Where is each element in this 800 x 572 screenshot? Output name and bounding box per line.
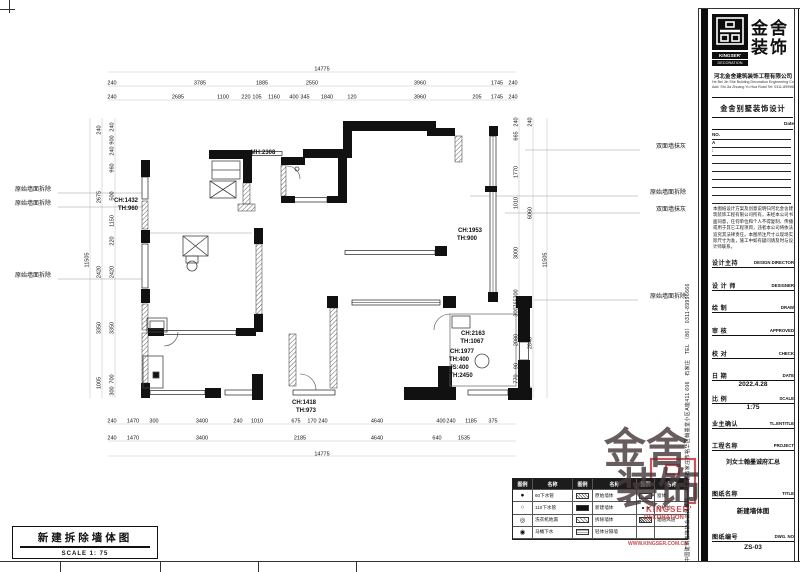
field-value: 1:75 [712,404,794,411]
dimension-text: 770 [514,374,520,383]
wall-plaster-label: 双面墙抹灰 [656,207,686,213]
dimension-text: 240 [514,117,520,126]
dimension-text: 675 [291,419,300,425]
legend-symbol: ◎ [513,515,533,527]
dimension-text: 1150 [110,215,116,227]
field-designer: 设 计 师 DESIGNER [712,281,794,291]
legend-name: 轻体分隔墙 [593,527,637,539]
brand-name-cn-2: 装饰 [751,33,789,58]
frame-tick [258,561,259,572]
dimension-text: 205 [472,95,481,101]
dimension-text: 220 [110,236,116,245]
frame-tick [60,561,61,572]
dimension-text: 1885 [256,81,268,87]
dimension-text: 240 [318,419,327,425]
dimension-text: 300 [514,289,520,298]
legend-name: 60下水管 [533,490,573,502]
dimension-text: 240 [528,117,534,126]
legend-header: 图例 [573,479,593,490]
dimension-text: 300 [528,386,534,395]
dimension-text: 400 [289,95,298,101]
drawing-sheet: 1477524037851885255039601745240240268511… [0,0,800,572]
dimension-text: 240 [110,122,116,131]
wall-type-symbol [576,529,589,535]
field-draw: 绘 制 DRAW [712,303,794,313]
dimension-text: 240 [446,419,455,425]
dimension-text: 2080 [514,334,520,346]
dimension-text: 2420 [110,266,116,278]
dimension-text: 2550 [306,81,318,87]
field-project: 工程名称 PROJECT 刘女士翰墨诚府汇总 [712,441,794,451]
dimension-text: 1100 [217,95,229,101]
legend-header: 名称 [533,479,573,490]
dimension-text: 3350 [97,322,103,334]
dimension-text: 1470 [127,436,139,442]
field-en: DESIGN DIRECTOR [754,260,794,265]
field-owner-confirm: 业主确认 TL.ENTITLE [712,419,794,429]
bottom-frame-line [0,561,700,562]
legend-name: 洗衣机地漏 [533,515,573,527]
dimension-text: 4640 [371,436,383,442]
field-en: DWG. NO [775,534,794,539]
field-label: 图纸编号 [712,532,738,541]
dimension-text: 11505 [85,253,91,268]
company-address: Add: Shi Jia Zhuang Yu Hua Road Tel: 031… [712,85,794,89]
wall-type-symbol [576,505,589,511]
legend-name: 马桶下水 [533,527,573,539]
window-annotation: CH:1953 [458,228,482,234]
wall-demolish-label: 原始墙面拆除 [15,187,51,193]
field-label: 校 对 [712,349,727,358]
dimension-text: 14775 [314,452,329,458]
dimension-text: 240 [107,419,116,425]
titleblock-frame-line [798,8,799,562]
dimension-text: 2420 [97,266,103,278]
legend-symbol [573,502,593,514]
dimension-text: 3400 [196,419,208,425]
dimension-text: 14775 [314,67,329,73]
demolished-walls [142,136,462,388]
dimension-text: 4640 [371,419,383,425]
wall-plaster-label: 双面墙抹灰 [656,144,686,150]
legend-symbol [573,527,593,539]
dimension-text: 105 [252,95,261,101]
dimension-text: 90 [514,363,520,369]
dimension-text: 3000 [514,247,520,259]
frame-tick [356,561,357,572]
field-en: TITLE [782,491,794,496]
field-label: 业主确认 [712,419,738,428]
dimension-text: 375 [488,419,497,425]
sheet-scale: SCALE 1: 75 [13,551,157,557]
field-en: APPROVED [770,328,794,333]
brand-watermark-text: 金舍 [604,428,688,470]
company-name: 河北金舍建筑装饰工程有限公司 [712,72,794,80]
date-label: Date [712,121,794,126]
frame-tick [160,561,161,572]
field-value: 刘女士翰墨诚府汇总 [712,457,794,466]
dimension-text: 240 [107,436,116,442]
dimension-text: 1745 [491,95,503,101]
field-en: SCALE [779,396,794,401]
wall-demolish-label: 原始墙面拆除 [650,190,686,196]
window-annotation: CH:2163 [461,331,485,337]
dimension-text: 3960 [414,81,426,87]
dimension-text: 1535 [458,436,470,442]
wall-type-symbol [576,493,589,499]
dimension-text: 240 [110,146,116,155]
dimension-text: 960 [110,163,116,172]
legend-symbol: ● [513,490,533,502]
dimension-text: 300 [514,307,520,316]
legend-name: 拆除墙体 [593,515,637,527]
field-title: 图纸名称 TITLE 新建墙体图 [712,489,794,499]
title-underline [20,546,150,548]
wall-type-symbol [576,517,589,523]
dimension-text: 120 [347,95,356,101]
field-design-director: 设计主持 DESIGN DIRECTOR [712,258,794,268]
dimension-text: 3785 [194,81,206,87]
legend-symbol [573,490,593,502]
legend-symbol: ◉ [513,527,533,539]
field-scale: 比 例 SCALE 1:75 [712,394,794,404]
field-en: DATE [783,373,794,378]
colon-label: : [712,148,714,153]
dimension-text: 1160 [268,95,280,101]
dimension-text: 765 [528,298,534,307]
watermark-decoration-text: DECORATION [644,515,684,521]
brand-name-en-2: DECORATION [712,60,748,66]
dimension-text: 640 [432,436,441,442]
misc-symbol [639,529,652,535]
dimension-text: 1840 [321,95,333,101]
window-annotation: CH:1432 [114,198,138,204]
field-dwg-no: 图纸编号 DWG. NO ZS-03 [712,532,794,542]
dimension-text: 900 [110,135,116,144]
field-label: 设 计 师 [712,281,736,290]
brand-name-en-1: KINGSER' [712,52,748,59]
titleblock-frame-line [698,8,699,562]
dimension-text: 240 [107,95,116,101]
dimension-text: 6060 [528,207,534,219]
dimension-text: 3960 [414,95,426,101]
title-block: 金舍 装饰 KINGSER' DECORATION 河北金舍建筑装饰工程有限公司… [710,0,795,572]
field-label: 比 例 [712,394,727,403]
legend-name: 110下水管 [533,502,573,514]
window-annotation: TH:1067 [460,339,483,345]
dimension-text: 300 [149,419,158,425]
sheet-title-box: 新建拆除墙体图 SCALE 1: 75 [12,526,158,559]
dimension-text: 765 [514,298,520,307]
kingser-logo-icon [712,14,748,50]
wall-demolish-label: 原始墙面拆除 [15,201,51,207]
legend-header: 图例 [513,479,533,490]
dimension-text: 3400 [196,436,208,442]
dimension-text: 665 [514,131,520,140]
dimension-text: 345 [300,95,309,101]
dimension-text: 700 [110,374,116,383]
a-label: A [712,140,715,145]
dimension-text: 1185 [465,419,477,425]
no-label: NO. [712,132,720,137]
dimension-text: 240 [97,125,103,134]
dimension-text: 1745 [491,81,503,87]
window-annotation: TH:900 [457,236,477,242]
dimension-text: 2675 [97,191,103,203]
field-value: ZS-03 [712,544,794,551]
field-en: CHECK [779,351,794,356]
legend-symbol [637,527,655,539]
dimension-text: 240 [233,419,242,425]
dimension-text: 3350 [110,322,116,334]
dimension-text: 1005 [97,377,103,389]
field-en: PROJECT [774,443,794,448]
company-vertical-text: 中国建筑装饰协会会员单位 河北省石家庄市裕华区翰墨堂小区A座411 606 石家… [684,8,695,562]
window-annotation: TH:973 [296,408,316,414]
dimension-text: 2840 [528,337,534,349]
watermark-url-text: WWW.KINGSER.COM.CN [628,541,688,547]
field-label: 绘 制 [712,303,727,312]
dimension-text: 1010 [514,197,520,209]
field-label: 图纸名称 [712,489,738,498]
field-label: 日 期 [712,371,727,380]
wall-demolish-label: 原始墙面拆除 [15,273,51,279]
window-annotation: TH:400 [449,357,469,363]
dimension-text: 300 [110,386,116,395]
legend-symbol: ○ [513,502,533,514]
ceiling-height-annotation: MH:2308 [251,150,276,156]
window-annotation: CH:1977 [450,349,474,355]
dimension-chain-lines [90,72,547,456]
field-label: 工程名称 [712,441,738,450]
dimension-text: 1770 [514,166,520,178]
company-name-en: He Bei Jin She Building Decoration Engin… [712,80,794,84]
dimension-text: 11505 [543,253,549,268]
dimension-text: 240 [107,81,116,87]
dimension-text: 1470 [127,419,139,425]
dimension-text: 1010 [251,419,263,425]
dimension-text: 2685 [172,95,184,101]
field-en: DESIGNER [772,283,794,288]
wall-demolish-label: 原始墙面拆除 [650,294,686,300]
frame-corner-mark [9,0,10,13]
field-en: TL.ENTITLE [770,421,794,426]
frame-corner-mark [0,9,15,10]
field-value: 2022.4.28 [712,381,794,388]
dept-title: 金舍别墅装饰设计 [712,104,794,114]
legend-symbol [573,515,593,527]
dimension-text: 240 [508,95,517,101]
dimension-text: 240 [508,81,517,87]
dimension-text: 400 [436,419,445,425]
field-label: 设计主持 [712,258,738,267]
field-date: 日 期 DATE 2022.4.28 [712,371,794,381]
window-annotation: TH:960 [118,206,138,212]
titleblock-black-bar [701,8,708,562]
field-label: 审 核 [712,326,727,335]
sheet-title: 新建拆除墙体图 [13,530,157,545]
field-value: 新建墙体图 [712,505,794,515]
window-annotation: JS:400 [449,365,468,371]
dimension-text: 2185 [294,436,306,442]
window-annotation: TH:2450 [449,373,472,379]
window-annotation: CH:1418 [292,400,316,406]
field-en: DRAW [781,305,794,310]
field-approved: 审 核 APPROVED [712,326,794,336]
field-check: 校 对 CHECK [712,349,794,359]
copyright-notice: 本图纸设计方案及创意说明归河北金舍建筑装饰工程有限公司所有，未经本公司书面同意，… [713,206,793,251]
dimension-text: 220 [241,95,250,101]
fixtures [143,161,516,390]
dimension-text: 170 [307,419,316,425]
